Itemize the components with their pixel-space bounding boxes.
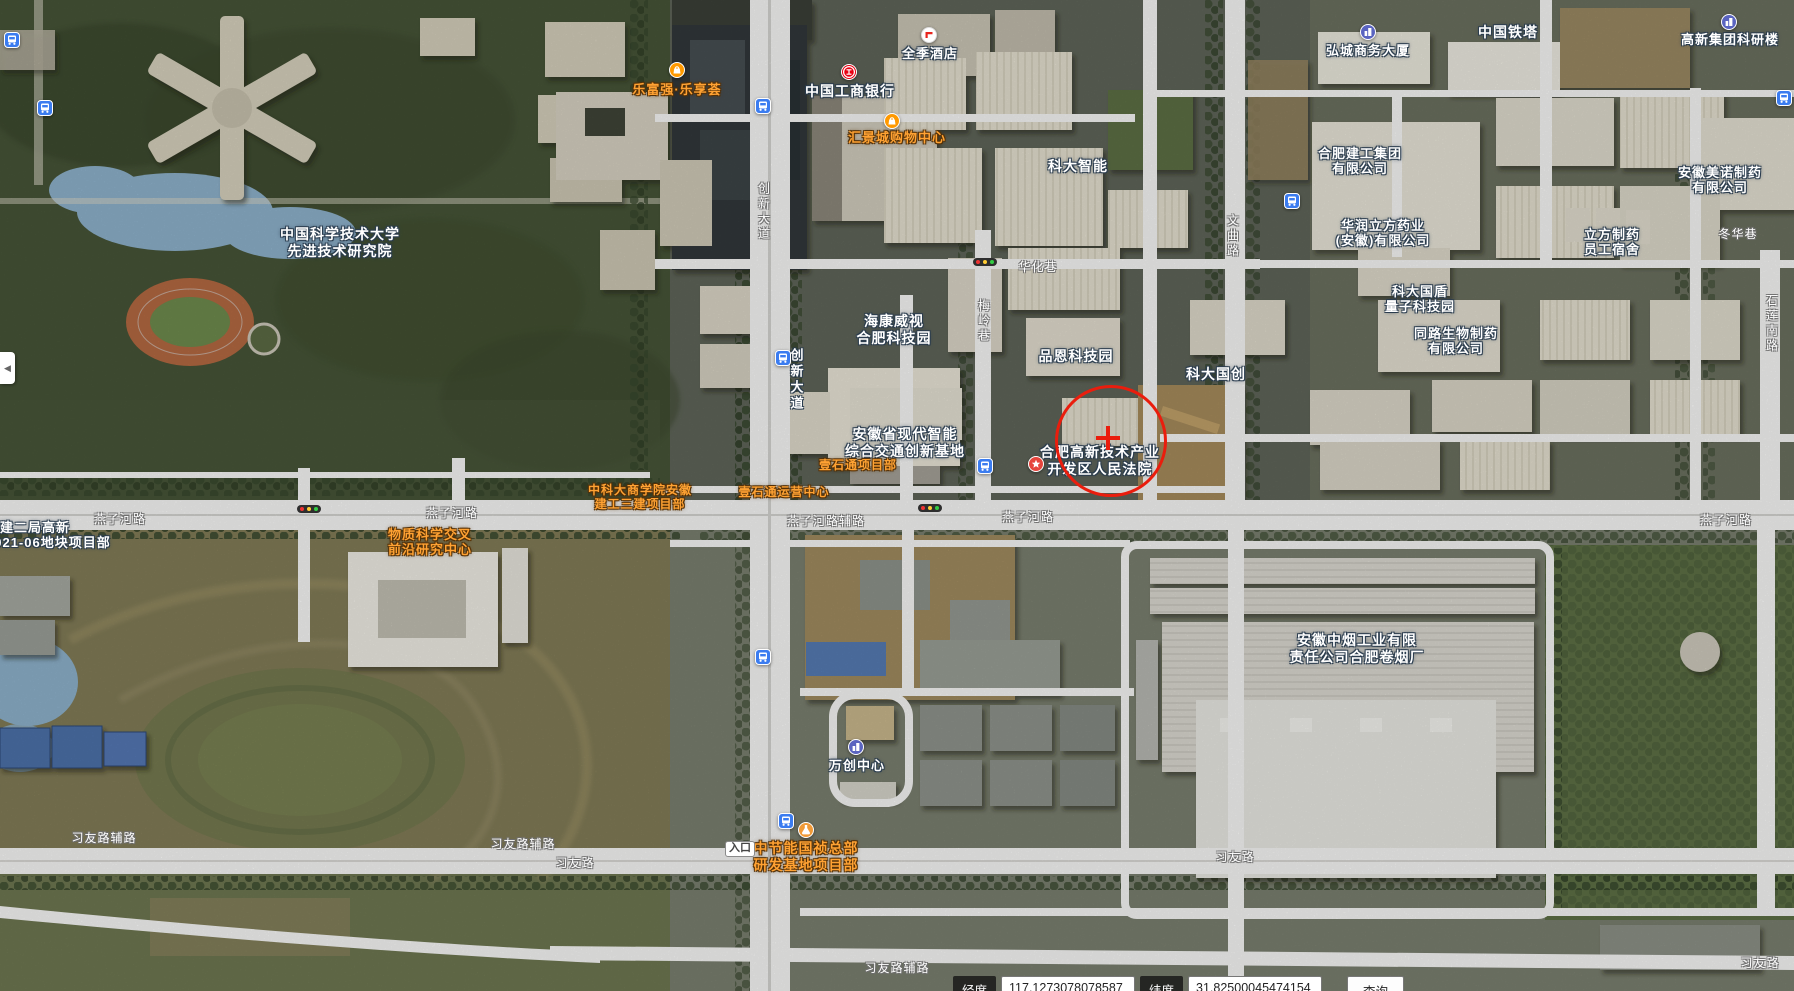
bus-icon[interactable] [755, 98, 771, 114]
road-label: 冬华巷 [1718, 225, 1757, 242]
latitude-label: 纬度 [1140, 976, 1183, 991]
poi-label-wuzhi-kexue[interactable]: 物质科学交叉前沿研究中心 [388, 527, 472, 558]
poi-label-zhongjieneng[interactable]: 中节能国祯总部研发基地项目部 [754, 840, 859, 873]
building-icon[interactable] [848, 739, 864, 755]
shopping-icon[interactable] [884, 113, 900, 129]
road-label: 梅岭巷 [976, 299, 993, 344]
query-button[interactable]: 查询 [1347, 976, 1404, 991]
poi-label-pinen[interactable]: 品恩科技园 [1039, 348, 1114, 365]
road-label: 文曲路 [1225, 214, 1242, 259]
poi-label-jiaotong-jidi[interactable]: 安徽省现代智能综合交通创新基地 [845, 426, 965, 459]
bus-icon[interactable] [1284, 193, 1300, 209]
map-labels-layer: 中国科学技术大学先进技术研究院科大智能海康威视合肥科技园品恩科技园科大国创科大国… [0, 0, 1794, 991]
bus-icon[interactable] [775, 350, 791, 366]
highlight-cross [1106, 426, 1110, 450]
highlight-circle [1055, 385, 1167, 497]
shopping-icon[interactable] [669, 62, 685, 78]
road-label: 习友路辅路 [71, 829, 136, 846]
bus-icon[interactable] [4, 32, 20, 48]
poi-label-ustc[interactable]: 中国科学技术大学先进技术研究院 [280, 226, 400, 259]
poi-label-wanchuang[interactable]: 万创中心 [829, 758, 885, 773]
road-label: 习友路 [555, 854, 594, 871]
bus-icon[interactable] [755, 649, 771, 665]
poi-label-keda-guochuang[interactable]: 科大国创 [1186, 366, 1246, 383]
road-label: 习友路 [1740, 954, 1779, 971]
longitude-input[interactable]: 117.1273078078587 [1001, 976, 1135, 991]
poi-label-lifang-sushe[interactable]: 立方制药员工宿舍 [1584, 227, 1640, 258]
bus-icon[interactable] [778, 813, 794, 829]
traffic-light-icon [973, 258, 997, 266]
poi-label-jiangong[interactable]: 合肥建工集团有限公司 [1318, 146, 1402, 177]
entrance-badge: 入口 [725, 841, 755, 857]
road-label: 习友路 [1215, 848, 1254, 865]
hotel-icon[interactable] [921, 27, 937, 43]
poi-label-tieta[interactable]: 中国铁塔 [1478, 24, 1538, 41]
poi-label-hongcheng[interactable]: 弘城商务大厦 [1326, 43, 1410, 58]
building-icon[interactable] [1721, 14, 1737, 30]
longitude-label: 经度 [953, 976, 996, 991]
road-label: 燕子河路辅路 [787, 512, 865, 529]
bus-icon[interactable] [977, 458, 993, 474]
road-label: 创新大道 [756, 182, 773, 242]
poi-label-huijingcheng[interactable]: 汇景城购物中心 [848, 130, 946, 145]
poi-label-lefuqiang[interactable]: 乐富强·乐享荟 [632, 82, 721, 97]
coordinate-bar: 经度 117.1273078078587 纬度 31.8250004547415… [953, 976, 1404, 991]
flask-icon[interactable] [798, 822, 814, 838]
panel-collapse-button[interactable]: ◀ [0, 352, 15, 384]
star-icon[interactable] [1028, 456, 1044, 472]
poi-label-yishitong-xiangmubu[interactable]: 壹石通项目部 [819, 458, 897, 472]
poi-label-meinuo[interactable]: 安徽美诺制药有限公司 [1678, 165, 1762, 196]
map-viewport[interactable]: 中国科学技术大学先进技术研究院科大智能海康威视合肥科技园品恩科技园科大国创科大国… [0, 0, 1794, 991]
poi-label-shangxueyuan[interactable]: 中科大商学院安徽建工三建项目部 [588, 483, 692, 511]
road-label: 华化巷 [1018, 258, 1057, 275]
bank-icon[interactable] [841, 64, 857, 80]
poi-label-huarun[interactable]: 华润立方药业(安徽)有限公司 [1336, 218, 1431, 249]
building-icon[interactable] [1360, 24, 1376, 40]
poi-label-tonglu[interactable]: 同路生物制药有限公司 [1414, 326, 1498, 357]
road-label: 燕子河路 [1700, 511, 1752, 528]
poi-label-icbc[interactable]: 中国工商银行 [805, 83, 895, 100]
road-label: 习友路辅路 [490, 835, 555, 852]
bus-icon[interactable] [37, 100, 53, 116]
poi-label-keda-zhineng[interactable]: 科大智能 [1048, 158, 1108, 175]
collapse-arrow-icon: ◀ [4, 363, 11, 374]
poi-label-hotel[interactable]: 全季酒店 [902, 46, 958, 61]
traffic-light-icon [297, 505, 321, 513]
road-label: 燕子河路 [94, 510, 146, 527]
traffic-light-icon [918, 504, 942, 512]
poi-label-yishitong-yunying[interactable]: 壹石通运营中心 [738, 485, 829, 499]
poi-label-zhongyan[interactable]: 安徽中烟工业有限责任公司合肥卷烟厂 [1290, 632, 1425, 665]
road-label: 石莲南路 [1764, 294, 1781, 354]
road-label: 燕子河路 [426, 504, 478, 521]
poi-label-guodun[interactable]: 科大国盾量子科技园 [1385, 284, 1455, 315]
poi-label-hikvision[interactable]: 海康威视合肥科技园 [857, 313, 932, 346]
poi-label-gaoxin-keyanlou[interactable]: 高新集团科研楼 [1681, 32, 1779, 47]
road-label: 燕子河路 [1002, 508, 1054, 525]
bus-icon[interactable] [1776, 90, 1792, 106]
latitude-input[interactable]: 31.82500045474154 [1188, 976, 1322, 991]
road-label: 习友路辅路 [864, 959, 929, 976]
